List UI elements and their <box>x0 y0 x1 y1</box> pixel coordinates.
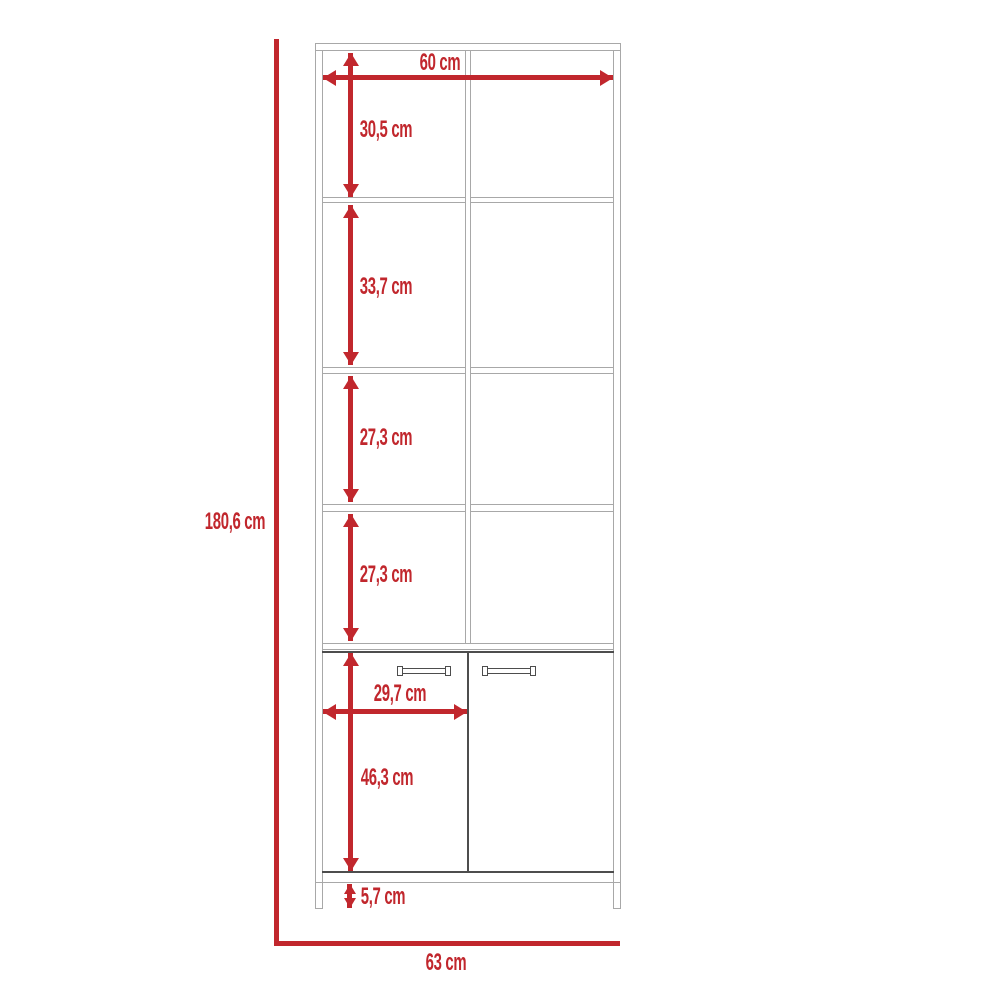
top-width-dimension-label: 60 cm <box>378 51 502 75</box>
arrow-head-down <box>343 184 359 197</box>
arrow-head-right <box>600 70 613 86</box>
arrow-head-left <box>323 70 336 86</box>
base-height-label: 5,7 cm <box>321 885 445 909</box>
overall-height-label: 180,6 cm <box>173 510 297 534</box>
door-width-label: 29,7 cm <box>338 682 462 706</box>
overall-width-extension-line <box>274 941 620 946</box>
door-height-label: 46,3 cm <box>325 766 449 790</box>
compartment-2-height-label: 33,7 cm <box>324 275 448 299</box>
arrow-head-up <box>343 53 359 66</box>
door-width-arrow <box>323 709 467 714</box>
arrow-head-up <box>343 376 359 389</box>
arrow-head-left <box>323 704 336 720</box>
compartment-4-height-label: 27,3 cm <box>324 563 448 587</box>
right-door-handle <box>483 668 535 674</box>
overall-width-label: 63 cm <box>384 951 508 975</box>
arrow-head-down <box>343 489 359 502</box>
door-divider-edge <box>467 651 469 873</box>
cabinet-right-side-panel <box>613 43 621 909</box>
shelf-4 <box>322 643 614 650</box>
center-vertical-divider <box>465 50 471 644</box>
arrow-head-down <box>343 858 359 871</box>
arrow-head-up <box>343 653 359 666</box>
arrow-head-down <box>343 628 359 641</box>
cabinet-dimension-diagram: 60 cm 30,5 cm 33,7 cm 27,3 cm 27,3 cm 29… <box>0 0 1000 1000</box>
overall-height-extension-line <box>274 39 279 946</box>
arrow-head-up <box>343 514 359 527</box>
cabinet-left-side-panel <box>315 43 323 909</box>
top-width-dimension-arrow <box>323 75 613 80</box>
arrow-head-down <box>343 352 359 365</box>
compartment-1-height-label: 30,5 cm <box>324 118 448 142</box>
arrow-head-up <box>343 205 359 218</box>
compartment-3-height-label: 27,3 cm <box>324 426 448 450</box>
left-door-handle <box>398 668 450 674</box>
